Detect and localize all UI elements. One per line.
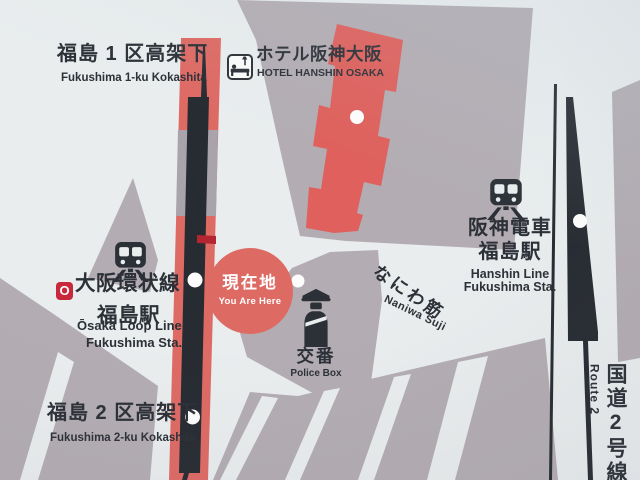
label-hanshin-station-ja: 福島駅 — [440, 242, 580, 263]
station-area-map: 福島 1 区高架下 Fukushima 1-ku Kokashita ホテル阪神… — [0, 0, 640, 480]
marker-dot — [292, 275, 305, 288]
label-hanshin-station-en: Fukushima Sta. — [440, 281, 580, 294]
marker-dot — [188, 273, 203, 288]
label-fukushima1-ja: 福島 1 区高架下 — [57, 44, 208, 65]
marker-dot — [350, 110, 364, 124]
label-hanshin-line-ja: 阪神電車 — [440, 218, 580, 239]
label-fukushima2-ja: 福島 2 区高架下 — [47, 403, 198, 424]
label-police-en: Police Box — [276, 369, 356, 380]
hotel-icon — [227, 54, 253, 80]
jr-loop-logo: O — [56, 282, 73, 300]
label-route2-en: Route 2 — [588, 364, 601, 415]
label-police-ja: 交番 — [276, 347, 356, 365]
label-hotel-ja: ホテル阪神大阪 — [256, 45, 382, 63]
you-are-here-ja: 現在地 — [207, 269, 293, 293]
label-route2-ja: 国道2号線 — [604, 363, 626, 480]
label-fukushima1-en: Fukushima 1-ku Kokashita — [61, 72, 207, 84]
police-officer-icon — [298, 287, 334, 347]
label-loop-station-en: Fukushima Sta. — [86, 336, 182, 350]
bed-icon — [229, 56, 251, 78]
you-are-here-en: You Are Here — [207, 296, 293, 307]
station-entrance-tick — [197, 235, 216, 244]
label-hotel-en: HOTEL HANSHIN OSAKA — [257, 68, 384, 79]
block-right-edge — [612, 80, 640, 362]
label-fukushima2-en: Fukushima 2-ku Kokashita — [50, 432, 196, 444]
you-are-here-marker: 現在地 You Are Here — [207, 248, 293, 334]
label-loop-line-ja: 大阪環状線 — [75, 273, 180, 295]
train-icon — [487, 178, 525, 220]
label-loop-line-en: Ōsaka Loop Line — [77, 319, 182, 333]
